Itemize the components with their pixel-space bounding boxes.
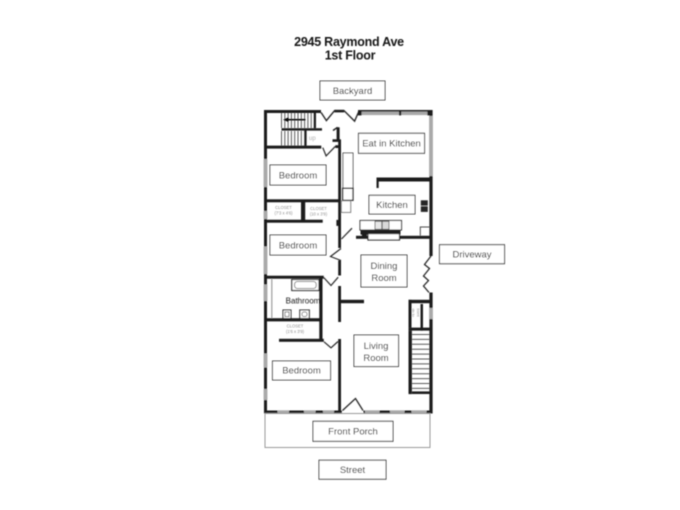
svg-text:CLOSET: CLOSET [287, 324, 304, 329]
svg-text:Bedroom: Bedroom [279, 240, 318, 251]
svg-text:(1'6 x 3'9): (1'6 x 3'9) [286, 329, 305, 334]
svg-text:dn to: dn to [411, 309, 415, 317]
svg-text:Front Porch: Front Porch [328, 427, 378, 438]
svg-text:Street: Street [340, 465, 366, 476]
svg-text:CLOSET: CLOSET [310, 206, 327, 211]
svg-text:Bathroom: Bathroom [286, 297, 321, 306]
svg-text:up: up [309, 136, 316, 142]
svg-text:Backyard: Backyard [333, 86, 373, 97]
svg-text:Eat in Kitchen: Eat in Kitchen [362, 139, 421, 150]
svg-text:Room: Room [363, 353, 388, 364]
svg-text:Kitchen: Kitchen [376, 200, 408, 211]
svg-text:CLOSET: CLOSET [275, 205, 292, 210]
svg-text:(10 x 3'9): (10 x 3'9) [310, 212, 328, 217]
svg-text:Bedroom: Bedroom [279, 170, 318, 181]
svg-text:1st Floor: 1st Floor [325, 48, 376, 62]
svg-text:Dining: Dining [371, 261, 398, 272]
svg-text:Room: Room [371, 273, 396, 284]
svg-text:bsmt: bsmt [416, 309, 420, 318]
svg-text:2945 Raymond Ave: 2945 Raymond Ave [294, 35, 404, 49]
svg-text:Bedroom: Bedroom [282, 366, 321, 377]
svg-text:Driveway: Driveway [452, 250, 491, 261]
svg-text:(7'3 x 4'6): (7'3 x 4'6) [274, 211, 293, 216]
svg-text:Living: Living [364, 341, 389, 352]
